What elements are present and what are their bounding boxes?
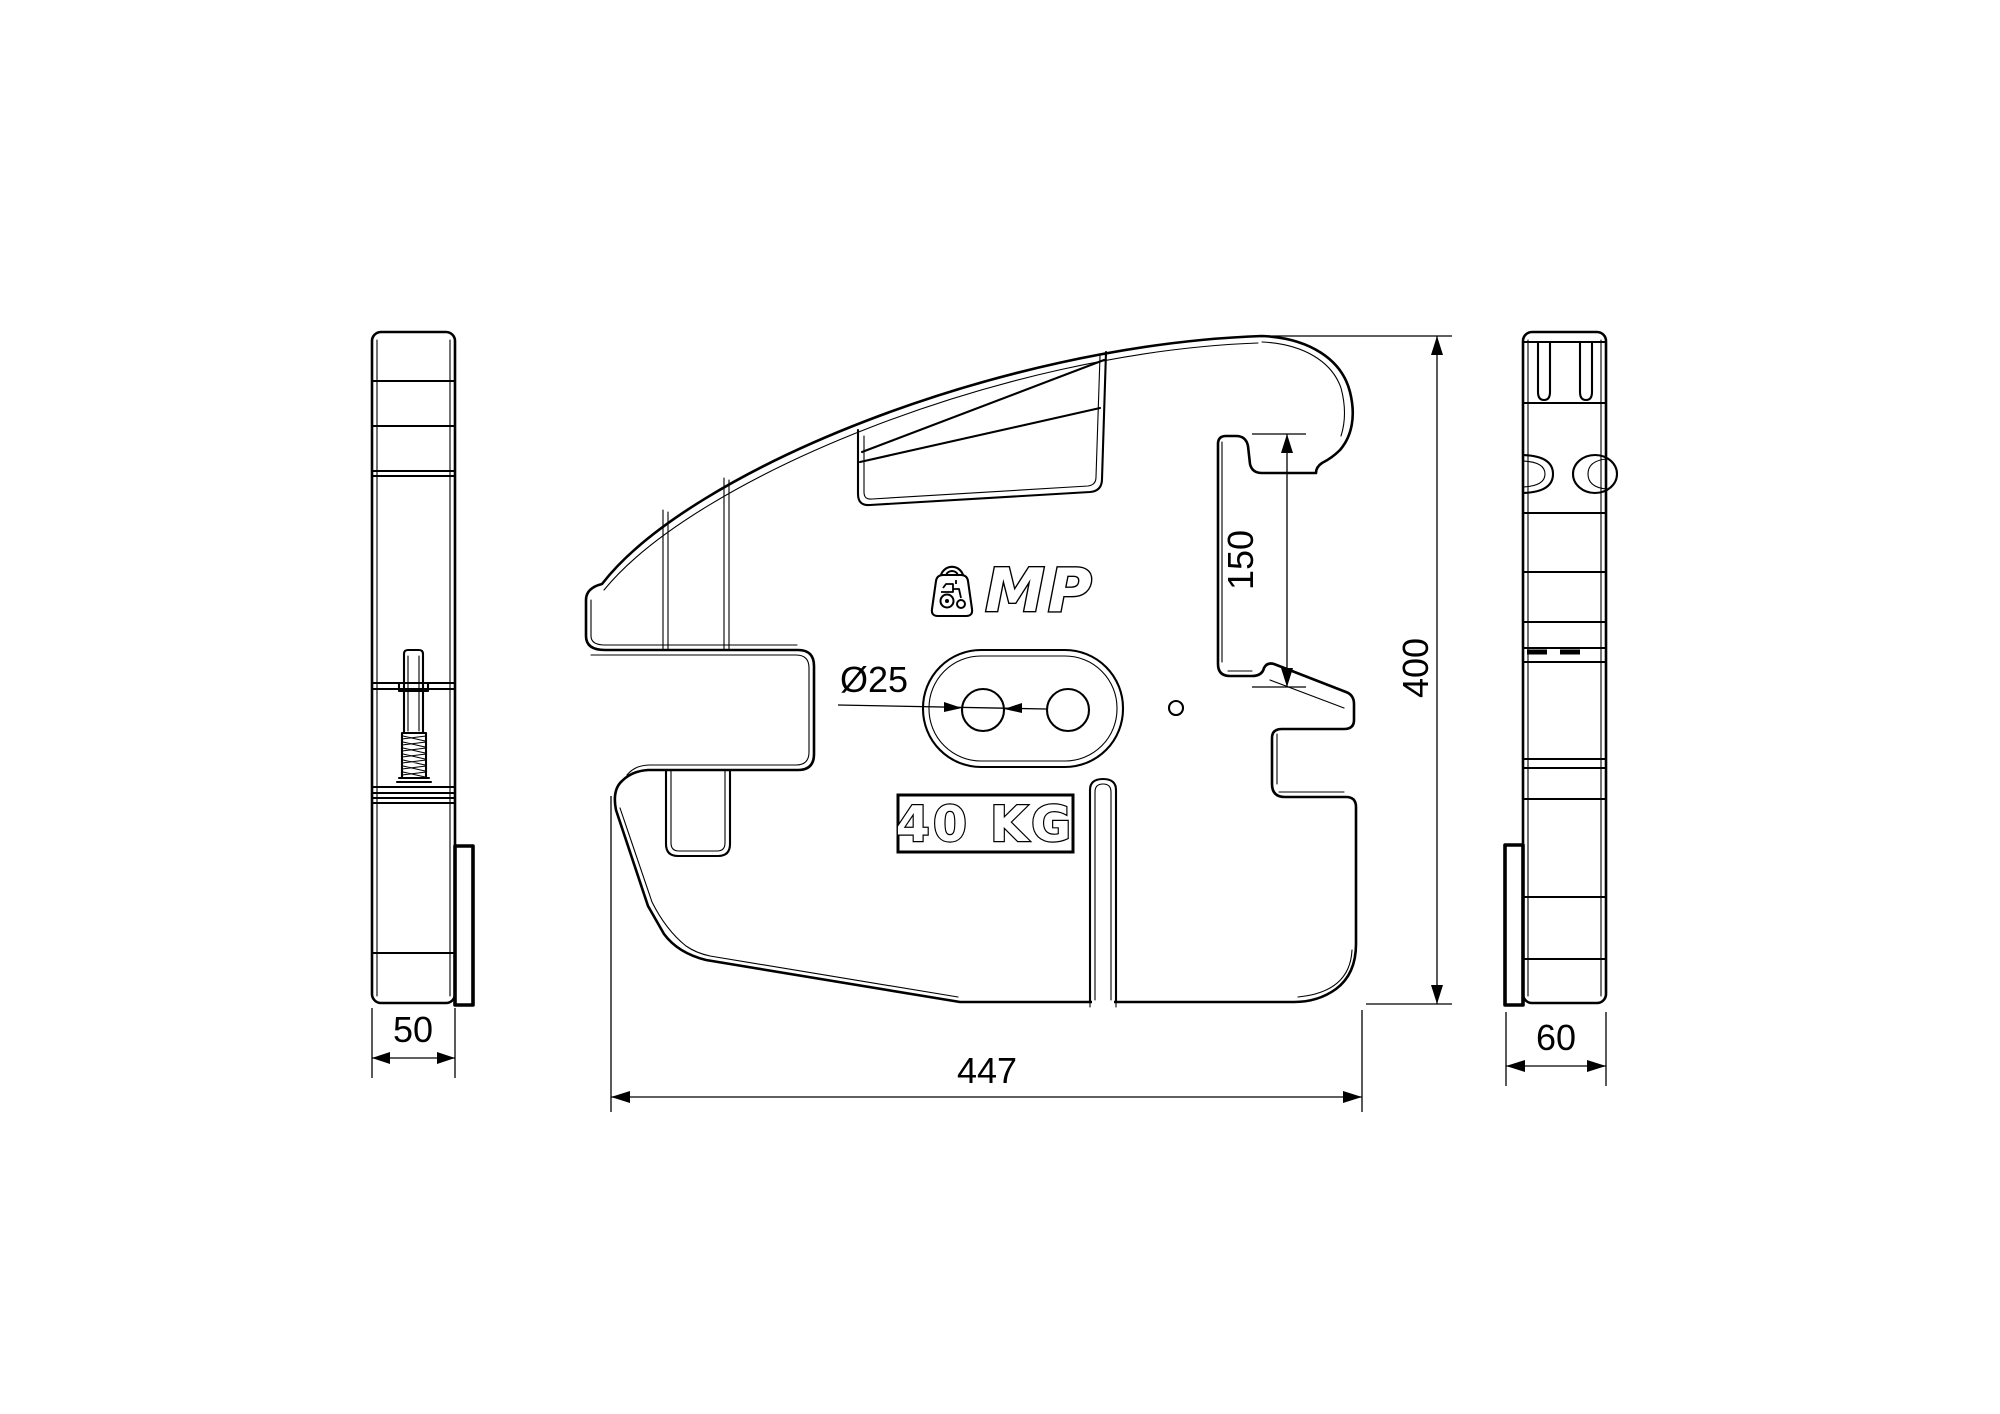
- left-view-foot-tab: [455, 846, 473, 1005]
- pin-hole-left: [962, 689, 1004, 731]
- dim-left-thickness-label: 50: [393, 1009, 433, 1050]
- drawing-canvas: 50: [0, 0, 2000, 1414]
- weight-value-label: 40 KG: [896, 796, 1074, 853]
- front-view-chamfer-lines: [591, 342, 1352, 997]
- tractor-glyph: [941, 580, 966, 608]
- left-side-view: 50: [372, 332, 473, 1078]
- front-view: 40 KG MP Ø25: [586, 336, 1452, 1112]
- bottom-slot: [1090, 779, 1116, 1007]
- left-view-body: [372, 332, 455, 1003]
- keyway-notch: [666, 770, 730, 856]
- front-view-outline: [586, 336, 1356, 1002]
- left-view-section-lines: [372, 381, 455, 953]
- right-view-body: [1523, 332, 1606, 1003]
- weight-label-plate: 40 KG: [896, 795, 1074, 853]
- pin-hole-right: [1047, 689, 1089, 731]
- dimension-400: 400: [1272, 336, 1452, 1004]
- right-view-top-slots: [1538, 342, 1592, 400]
- dim-hole-label: Ø25: [840, 659, 908, 700]
- left-view-edge-chamfers: [377, 340, 450, 996]
- brand-logo: MP: [932, 556, 1095, 626]
- top-recess-panel: [858, 352, 1106, 505]
- drawing-sheet: 50: [0, 0, 2000, 1414]
- right-view-hole-section-arcs: [1523, 455, 1617, 493]
- dim-notch-label: 150: [1220, 530, 1261, 590]
- dim-width-label: 447: [957, 1050, 1017, 1091]
- dim-right-thickness-label: 60: [1536, 1017, 1576, 1058]
- left-view-spring-icon: [397, 733, 431, 782]
- weight-tractor-icon: [932, 567, 972, 616]
- dimension-hole-diameter: Ø25: [838, 659, 1046, 713]
- small-pilot-hole: [1169, 701, 1183, 715]
- dimension-60: 60: [1506, 1012, 1606, 1086]
- left-view-lock-pin: [399, 650, 428, 733]
- right-side-view: 60: [1505, 332, 1617, 1086]
- right-view-foot-tab: [1505, 845, 1523, 1005]
- brand-name-label: MP: [985, 556, 1095, 626]
- dim-height-label: 400: [1395, 638, 1436, 698]
- dimension-50: 50: [372, 1008, 455, 1078]
